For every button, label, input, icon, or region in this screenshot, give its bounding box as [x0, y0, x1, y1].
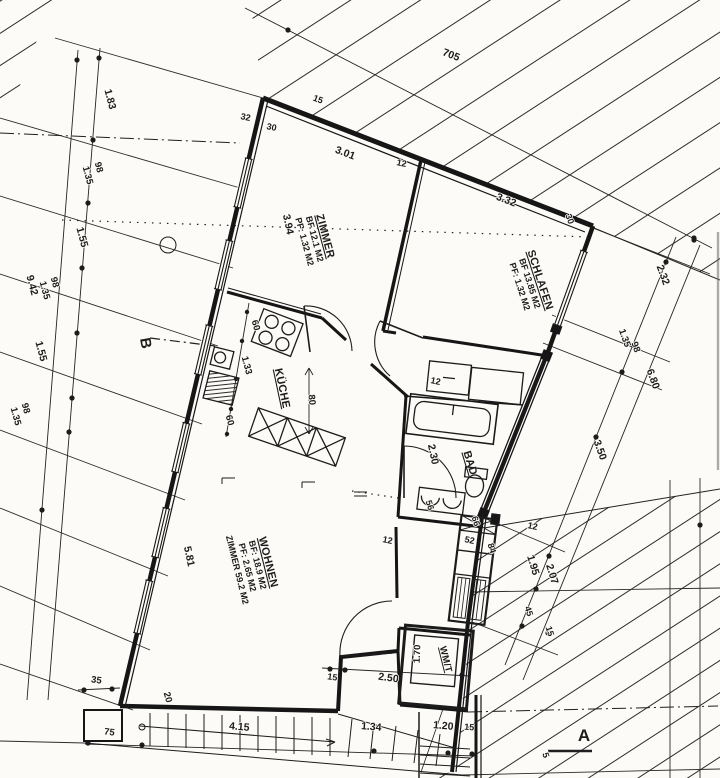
dimension-label: 12 [430, 375, 442, 387]
room-label-bad: BAD [461, 450, 480, 477]
room-label-kueche: KÜCHE [272, 367, 293, 409]
dimension-label: 4.15 [229, 720, 251, 734]
dimension-label: 60 [249, 319, 262, 332]
dimension-label: 5.81 [181, 545, 197, 568]
dimension-label: 9.42 [23, 274, 40, 297]
kitchen-counter [249, 408, 346, 466]
room-label-wohnen: WOHNENBF: 18.9 M2PF: 2.65 M2ZIMMER 59.2 … [224, 527, 282, 606]
room-label-schlafen: SCHLAFENBF 13.85 M2PF: 1.32 M2 [506, 249, 556, 318]
dimension-label: 3.94 [280, 213, 296, 236]
dimension-label: 98 [92, 161, 105, 174]
dimension-label: 3.50 [591, 438, 609, 461]
dimension-label: 75 [103, 726, 116, 738]
section-marker-b: B [136, 336, 155, 350]
dimension-label: 32 [240, 111, 252, 123]
dimension-label: 1.83 [101, 88, 118, 111]
dimension-label: 1.20 [433, 719, 455, 733]
dimension-label: 60 [223, 414, 236, 427]
dimension-label: 1.55 [32, 340, 49, 363]
dimension-label: 2.30 [425, 443, 441, 466]
section-marker-a: A [578, 726, 590, 745]
neighbor-hatch-corner [0, 0, 52, 116]
dimension-label: 2.32 [654, 263, 672, 286]
floorplan-page: 7051532303.01123.32303.942.321.35986.803… [0, 0, 720, 778]
doors [304, 306, 456, 656]
dimension-label: 12 [396, 157, 408, 169]
floorplan-canvas: 7051532303.01123.32303.942.321.35986.803… [0, 0, 720, 778]
dimension-label: 52 [464, 534, 476, 546]
dimension-label: 12 [527, 520, 539, 532]
room-label-zimmer: ZIMMERBF 12.1 M2PF: 1.32 M2 [293, 211, 337, 267]
dimension-label: 56 [424, 499, 436, 512]
detail-marks [222, 478, 367, 496]
dimension-label: 35 [90, 674, 103, 686]
dimension-label: 1.55 [73, 226, 90, 249]
boiler [210, 347, 234, 369]
dimension-label: 2.50 [377, 671, 399, 686]
dimension-label: 1.33 [239, 355, 254, 376]
dimension-label: 30 [563, 213, 576, 226]
dimension-label: 80 [306, 394, 318, 405]
dimension-label: 15 [464, 722, 475, 733]
dimension-label: 3.01 [333, 144, 357, 163]
dimension-label: 30 [266, 121, 278, 133]
kitchen-sink [203, 371, 239, 405]
dimension-label: 20 [161, 691, 174, 704]
site-circle [160, 237, 176, 253]
stove [251, 309, 303, 357]
dimension-label: 1.70 [412, 644, 424, 663]
dimension-label: 1.34 [361, 720, 383, 734]
room-label-wmt: WM/T [437, 645, 454, 673]
dimension-label: 12 [382, 534, 394, 546]
wardrobe [468, 367, 523, 404]
stairs [85, 706, 470, 778]
dimension-label: 15 [327, 671, 338, 682]
dimension-label: 6.80 [644, 367, 662, 390]
